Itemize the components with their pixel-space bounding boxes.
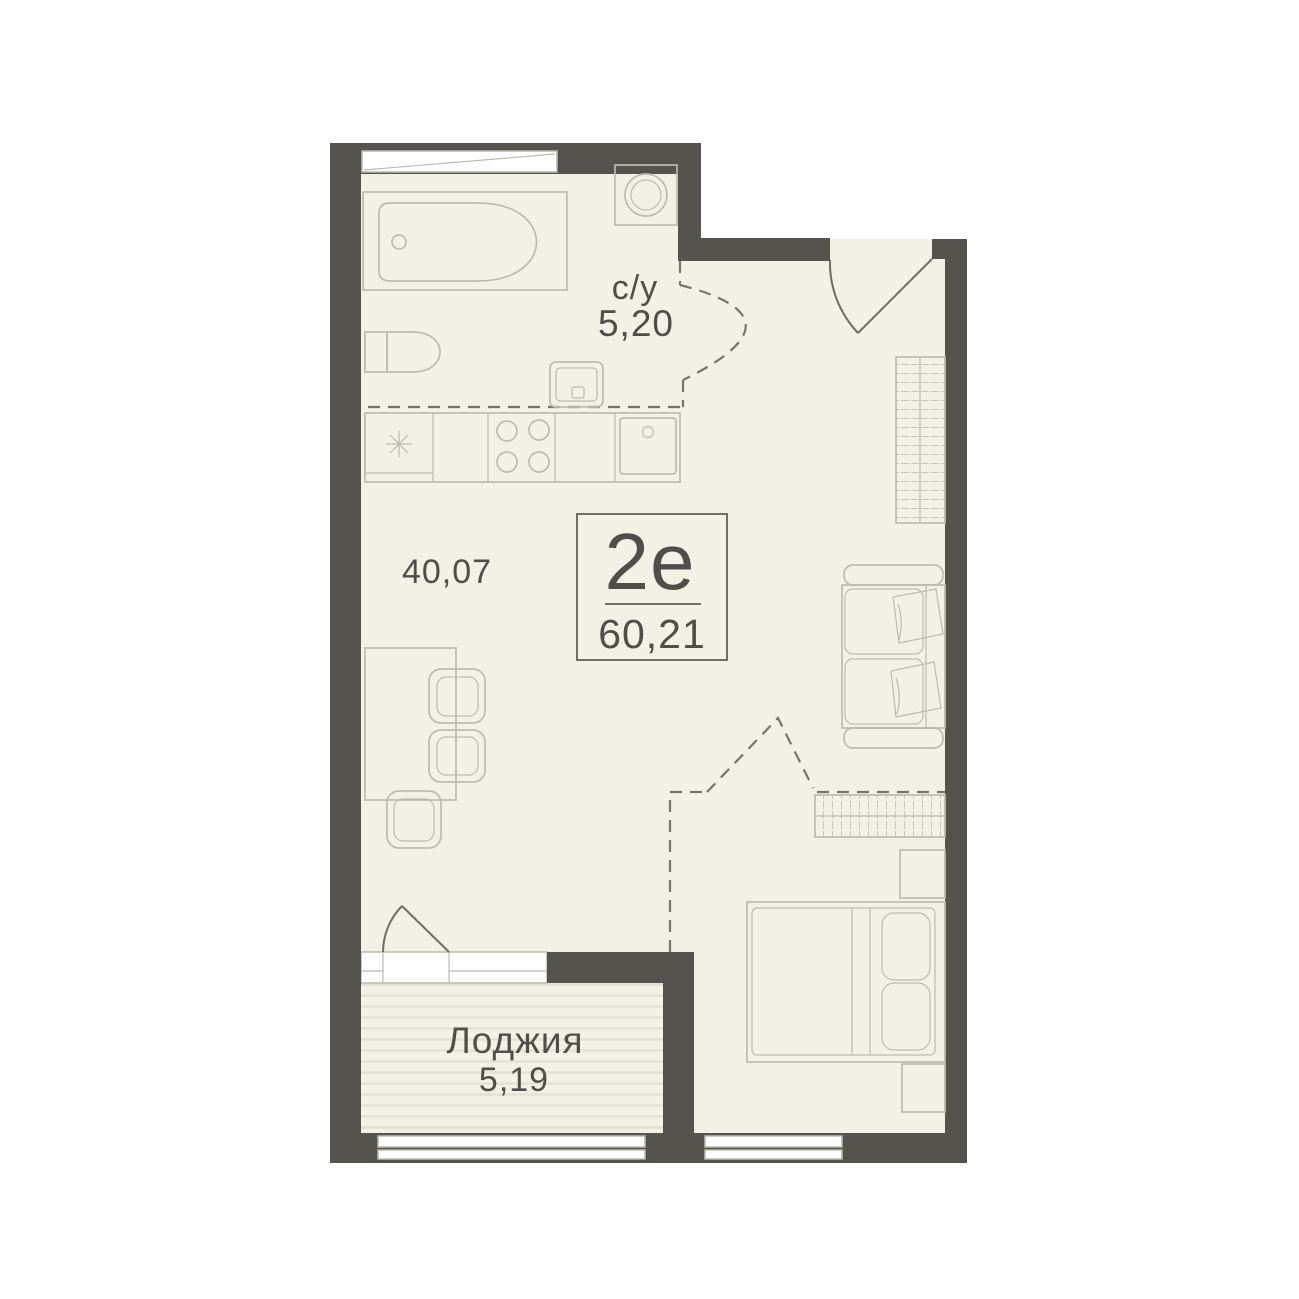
wall-hall-top [678, 238, 830, 261]
living-area-label: 40,07 [402, 553, 492, 591]
bathroom-area: 5,20 [598, 303, 674, 344]
wall-right [945, 239, 967, 1163]
floor-plan-drawing: с/у 5,20 40,07 Лоджия 5,19 2е 60,21 [0, 0, 1299, 1299]
wall-loggia-right [663, 952, 694, 1163]
bathroom-label: с/у [612, 269, 658, 307]
loggia-area: 5,19 [479, 1061, 549, 1099]
nightstand [902, 1064, 945, 1112]
wall-left [330, 143, 361, 1163]
loggia-label: Лоджия [446, 1020, 583, 1061]
unit-total-area: 60,21 [598, 611, 706, 657]
unit-info-box: 2е 60,21 [577, 514, 727, 660]
wardrobe-bedroom [815, 795, 945, 837]
floor-plan: с/у 5,20 40,07 Лоджия 5,19 2е 60,21 [0, 0, 1299, 1299]
unit-type-label: 2е [605, 517, 696, 606]
wardrobe-hall [896, 357, 945, 523]
window-loggia [378, 1136, 645, 1159]
loggia-glazing [361, 952, 547, 983]
window-bedroom [705, 1136, 842, 1159]
window-top [362, 151, 557, 172]
nightstand [900, 850, 945, 898]
